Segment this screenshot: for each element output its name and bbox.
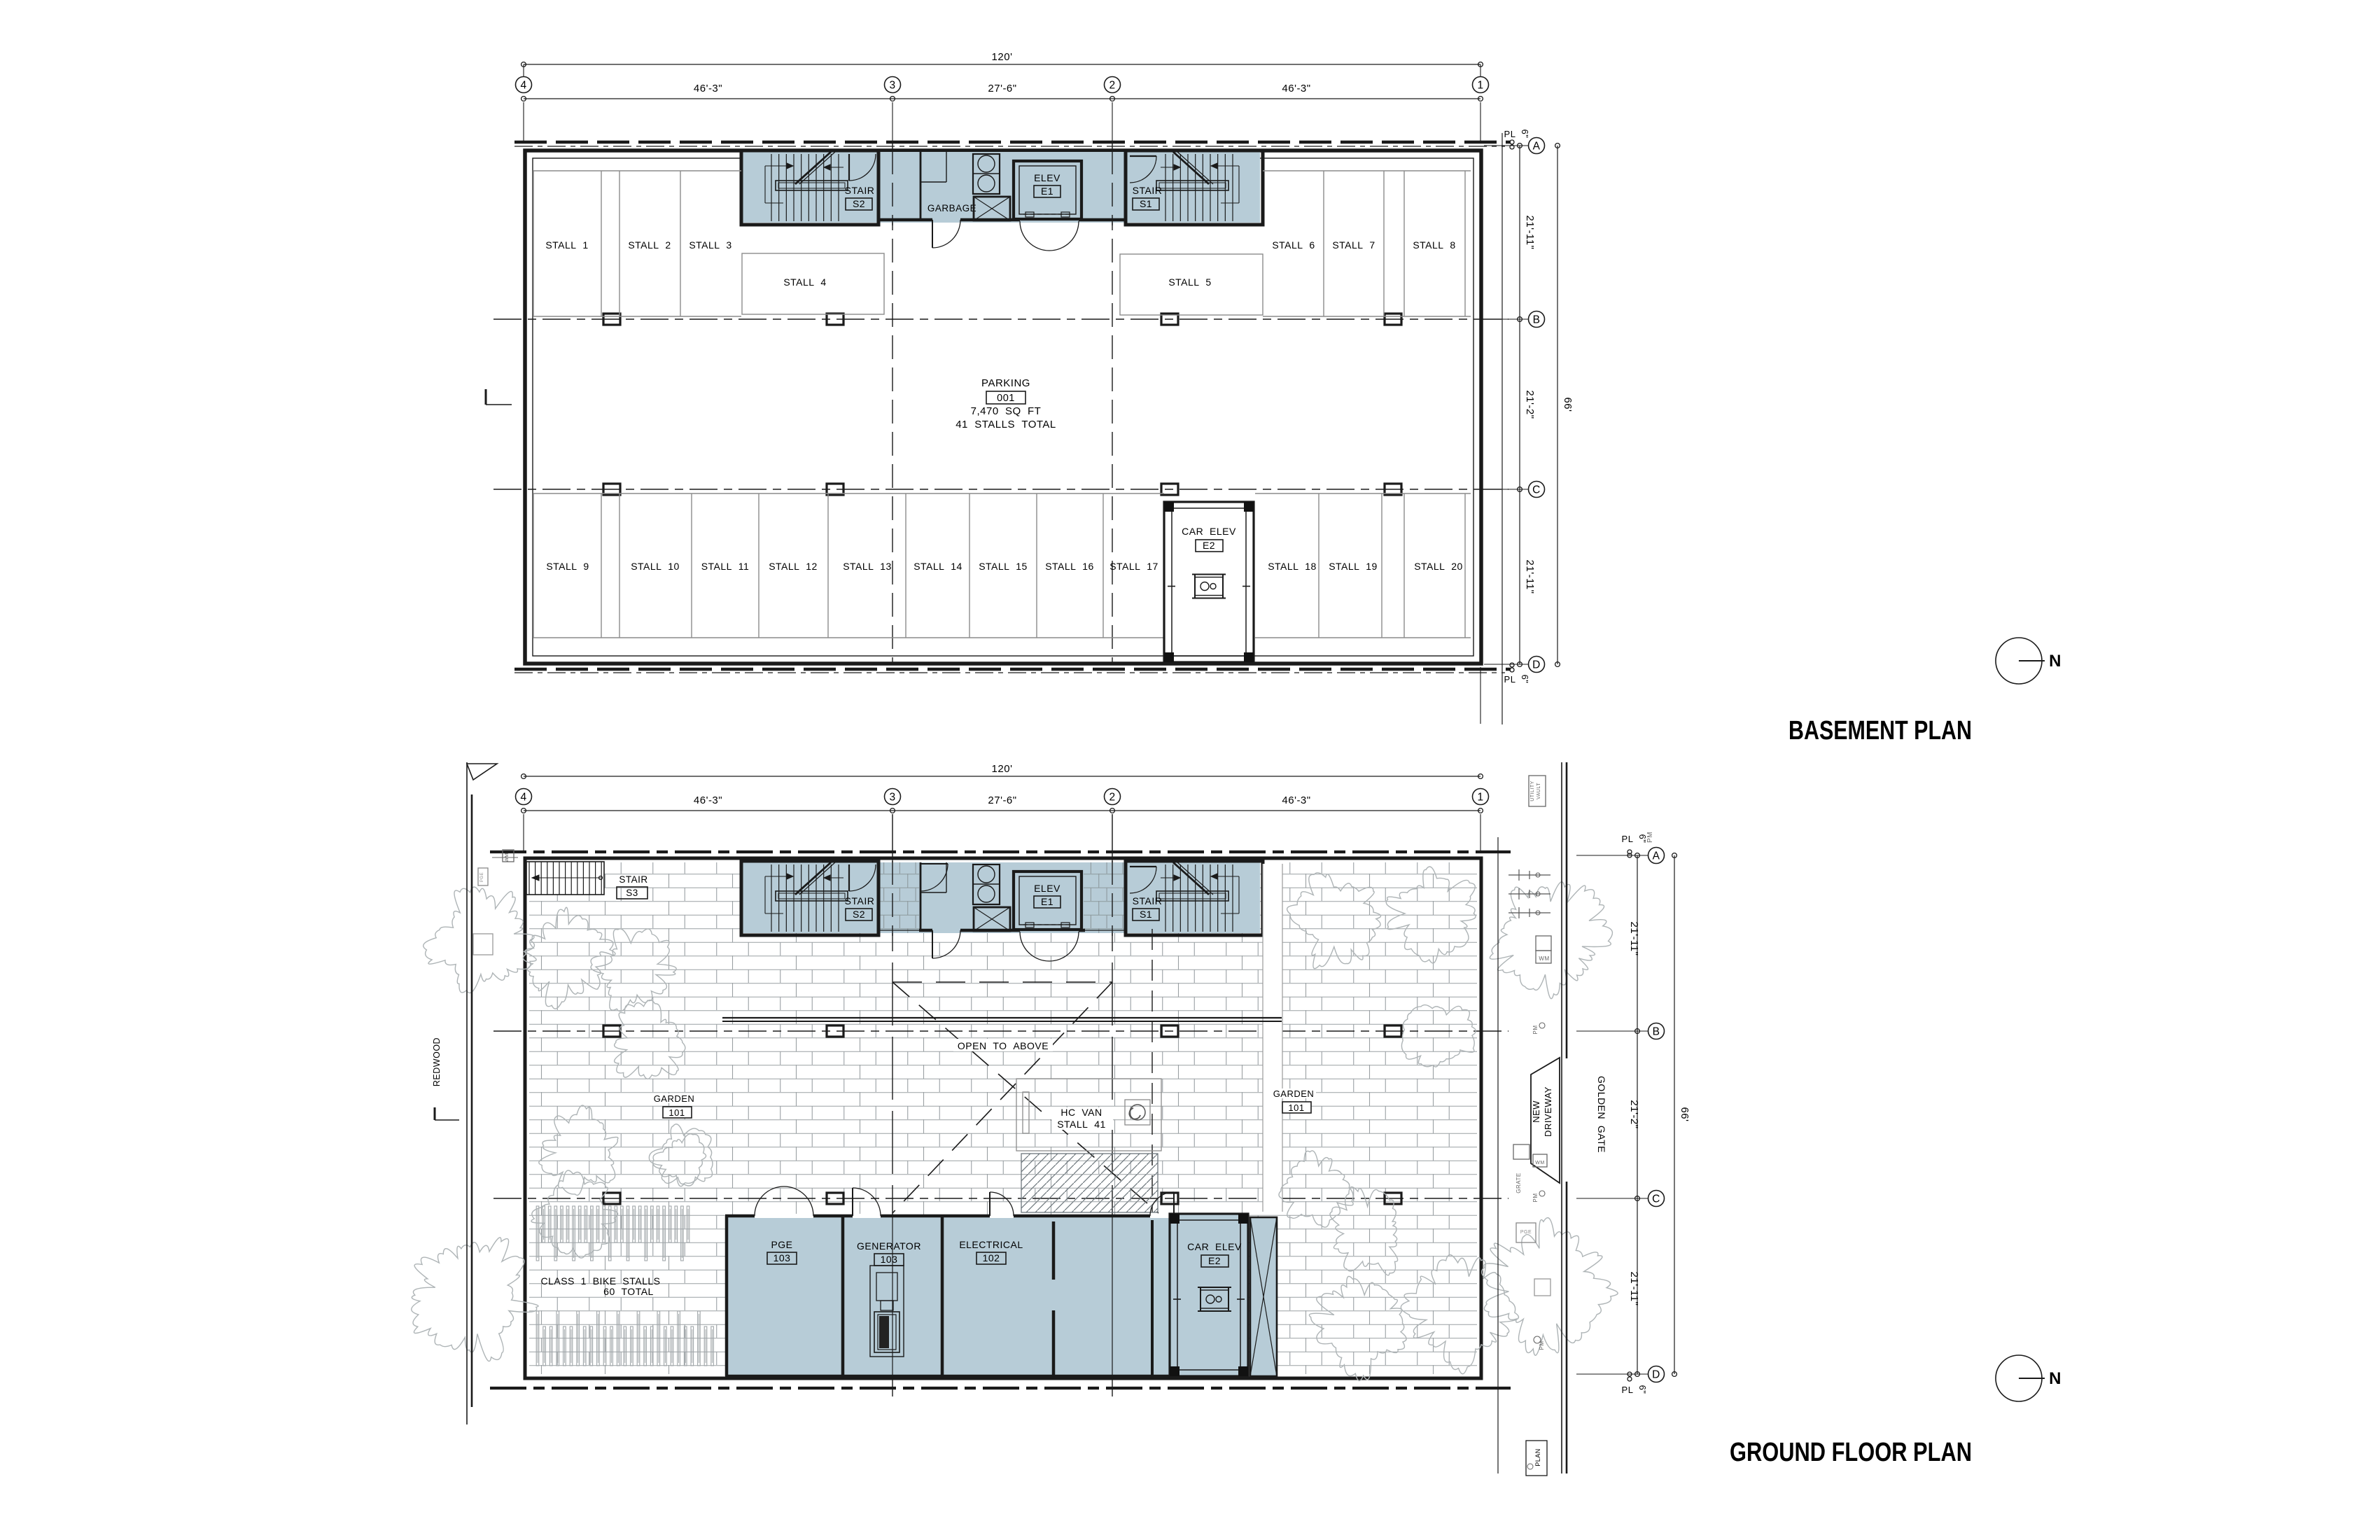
svg-text:21'-2": 21'-2"	[1628, 1100, 1640, 1128]
svg-text:UTILITY: UTILITY	[1530, 780, 1535, 801]
svg-text:21'-2": 21'-2"	[1524, 390, 1536, 419]
svg-text:66': 66'	[1679, 1107, 1690, 1121]
svg-text:STALL 7: STALL 7	[1332, 239, 1375, 251]
svg-text:PGE: PGE	[480, 872, 484, 882]
svg-text:STAIR: STAIR	[619, 874, 647, 885]
svg-text:103: 103	[881, 1254, 898, 1265]
svg-text:STALL 6: STALL 6	[1272, 239, 1315, 251]
svg-text:S3: S3	[626, 888, 638, 898]
svg-text:001: 001	[997, 393, 1015, 404]
svg-text:STALL 16: STALL 16	[1045, 561, 1094, 572]
svg-text:21'-11": 21'-11"	[1628, 1272, 1640, 1306]
svg-text:STALL 17: STALL 17	[1109, 561, 1158, 572]
svg-text:E2: E2	[1208, 1255, 1221, 1266]
svg-text:E1: E1	[1041, 896, 1053, 907]
svg-text:VAULT: VAULT	[1536, 783, 1541, 799]
svg-text:102: 102	[983, 1252, 1000, 1263]
svg-text:21'-11": 21'-11"	[1524, 216, 1536, 250]
svg-text:E2: E2	[1203, 540, 1215, 551]
svg-text:21'-11": 21'-11"	[1628, 922, 1640, 956]
svg-text:STALL 1: STALL 1	[545, 239, 588, 251]
svg-text:S2: S2	[853, 909, 865, 920]
svg-text:STALL 5: STALL 5	[1168, 276, 1211, 288]
svg-text:STALL 3: STALL 3	[689, 239, 731, 251]
svg-text:STALL 8: STALL 8	[1413, 239, 1455, 251]
svg-text:CLASS 1 BIKE STALLS: CLASS 1 BIKE STALLS	[540, 1275, 660, 1287]
svg-text:STAIR: STAIR	[1133, 185, 1163, 196]
svg-text:S2: S2	[853, 198, 865, 209]
svg-text:27'-6": 27'-6"	[988, 83, 1016, 94]
svg-text:120': 120'	[992, 763, 1013, 775]
svg-text:46'-3": 46'-3"	[694, 83, 722, 94]
svg-text:WM: WM	[1539, 955, 1549, 962]
svg-text:3: 3	[889, 80, 895, 92]
svg-text:1: 1	[1477, 80, 1483, 92]
svg-text:PL: PL	[1622, 834, 1634, 844]
svg-text:STALL 41: STALL 41	[1057, 1119, 1106, 1130]
svg-text:NEW: NEW	[1531, 1100, 1541, 1123]
svg-text:A: A	[1653, 850, 1660, 862]
svg-text:B: B	[1653, 1026, 1660, 1038]
svg-text:ELEV: ELEV	[1034, 172, 1060, 183]
svg-text:STALL 13: STALL 13	[843, 561, 892, 572]
svg-text:STALL 19: STALL 19	[1329, 561, 1378, 572]
svg-text:2: 2	[1109, 792, 1115, 804]
svg-text:ELECTRICAL: ELECTRICAL	[959, 1239, 1023, 1250]
svg-text:46'-3": 46'-3"	[1282, 794, 1310, 806]
svg-text:GROUND FLOOR PLAN: GROUND FLOOR PLAN	[1730, 1438, 1972, 1467]
svg-text:6": 6"	[1520, 129, 1530, 139]
svg-text:120': 120'	[992, 51, 1013, 63]
svg-text:STALL 4: STALL 4	[783, 276, 826, 288]
svg-text:1: 1	[1477, 792, 1483, 804]
svg-text:STALL 9: STALL 9	[546, 561, 589, 572]
svg-text:66': 66'	[1562, 397, 1574, 412]
svg-text:101: 101	[1288, 1102, 1304, 1113]
svg-text:STAIR: STAIR	[845, 895, 875, 906]
svg-text:3: 3	[889, 792, 895, 804]
svg-text:7,470 SQ FT: 7,470 SQ FT	[971, 405, 1042, 417]
svg-text:WM: WM	[1535, 1161, 1544, 1165]
svg-text:STALL 18: STALL 18	[1268, 561, 1317, 572]
svg-text:D: D	[1532, 659, 1541, 671]
svg-text:BASEMENT PLAN: BASEMENT PLAN	[1788, 716, 1972, 745]
svg-text:GARDEN: GARDEN	[654, 1093, 695, 1104]
svg-text:OPEN TO ABOVE: OPEN TO ABOVE	[958, 1040, 1049, 1051]
svg-text:S1: S1	[1140, 909, 1152, 920]
svg-text:WM: WM	[505, 853, 510, 862]
svg-text:PM: PM	[1532, 1193, 1539, 1203]
svg-text:E1: E1	[1041, 185, 1053, 197]
svg-text:C: C	[1652, 1193, 1660, 1205]
svg-text:21'-11": 21'-11"	[1524, 560, 1536, 594]
svg-text:CAR ELEV: CAR ELEV	[1182, 526, 1236, 537]
svg-text:STALL 20: STALL 20	[1414, 561, 1463, 572]
svg-text:STALL 12: STALL 12	[769, 561, 818, 572]
svg-text:S1: S1	[1140, 198, 1152, 209]
svg-text:GOLDEN GATE: GOLDEN GATE	[1596, 1076, 1607, 1153]
svg-text:B: B	[1533, 314, 1541, 326]
svg-text:6": 6"	[1520, 675, 1530, 684]
svg-text:D: D	[1652, 1369, 1660, 1381]
svg-text:103: 103	[773, 1252, 791, 1263]
svg-text:46'-3": 46'-3"	[694, 794, 722, 806]
svg-text:GRATE: GRATE	[1515, 1172, 1522, 1193]
svg-text:PM: PM	[1646, 832, 1654, 843]
svg-text:HC VAN: HC VAN	[1060, 1107, 1102, 1118]
svg-text:6": 6"	[1637, 1385, 1648, 1394]
svg-text:CAR ELEV: CAR ELEV	[1187, 1241, 1242, 1252]
svg-text:N: N	[2049, 652, 2061, 671]
svg-text:DRIVEWAY: DRIVEWAY	[1543, 1086, 1553, 1137]
svg-text:GARBAGE: GARBAGE	[927, 203, 976, 213]
svg-text:PM: PM	[1532, 1025, 1539, 1035]
svg-text:PL: PL	[1622, 1385, 1634, 1395]
svg-text:PM: PM	[1539, 1341, 1545, 1350]
svg-text:PL: PL	[1504, 129, 1516, 139]
svg-text:GENERATOR: GENERATOR	[857, 1240, 921, 1252]
svg-text:2: 2	[1109, 80, 1115, 92]
svg-text:60 TOTAL: 60 TOTAL	[603, 1286, 654, 1297]
svg-text:STALL 15: STALL 15	[979, 561, 1028, 572]
svg-text:41 STALLS TOTAL: 41 STALLS TOTAL	[955, 419, 1056, 430]
svg-text:PLAN: PLAN	[1534, 1448, 1541, 1466]
svg-text:STAIR: STAIR	[1133, 895, 1163, 906]
svg-text:STALL 11: STALL 11	[701, 561, 750, 572]
svg-text:STALL 14: STALL 14	[913, 561, 962, 572]
svg-text:STALL 2: STALL 2	[628, 239, 671, 251]
svg-text:REDWOOD: REDWOOD	[432, 1037, 442, 1086]
svg-text:4: 4	[520, 792, 526, 804]
svg-text:101: 101	[668, 1107, 685, 1118]
svg-text:PGE: PGE	[1520, 1230, 1532, 1235]
svg-text:STALL 10: STALL 10	[631, 561, 680, 572]
svg-text:C: C	[1532, 484, 1541, 496]
svg-text:A: A	[1533, 141, 1541, 153]
svg-text:4: 4	[520, 80, 526, 92]
svg-text:PL: PL	[1504, 674, 1516, 685]
svg-text:46'-3": 46'-3"	[1282, 83, 1310, 94]
svg-text:STAIR: STAIR	[845, 185, 875, 196]
svg-text:27'-6": 27'-6"	[988, 794, 1016, 806]
svg-text:ELEV: ELEV	[1034, 883, 1060, 894]
svg-text:PARKING: PARKING	[981, 377, 1030, 389]
svg-text:GARDEN: GARDEN	[1273, 1088, 1315, 1099]
svg-text:PGE: PGE	[771, 1239, 792, 1250]
svg-text:N: N	[2049, 1369, 2061, 1388]
